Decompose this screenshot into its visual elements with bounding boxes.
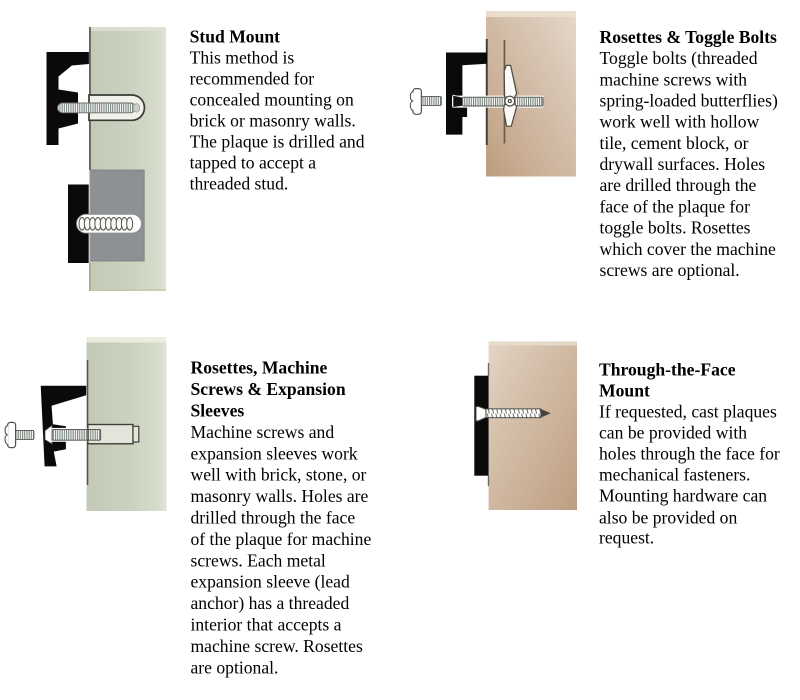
svg-text:drywall surfaces. Holes: drywall surfaces. Holes	[600, 154, 766, 174]
svg-text:well with brick, stone, or: well with brick, stone, or	[191, 465, 367, 485]
svg-text:machine screws with: machine screws with	[600, 69, 748, 89]
svg-text:which cover the machine: which cover the machine	[600, 239, 777, 259]
svg-text:If requested, cast plaques: If requested, cast plaques	[599, 402, 777, 422]
svg-text:tapped to accept a: tapped to accept a	[190, 152, 317, 172]
svg-text:threaded stud.: threaded stud.	[190, 173, 289, 193]
svg-text:Rosettes & Toggle Bolts: Rosettes & Toggle Bolts	[600, 27, 778, 47]
svg-text:are drilled through the: are drilled through the	[600, 175, 757, 195]
svg-text:screws are optional.: screws are optional.	[600, 260, 740, 280]
svg-text:anchor) has a threaded: anchor) has a threaded	[191, 593, 350, 613]
svg-text:request.: request.	[599, 528, 654, 548]
svg-text:machine screw. Rosettes: machine screw. Rosettes	[191, 636, 363, 656]
svg-text:spring-loaded butterflies): spring-loaded butterflies)	[600, 91, 778, 111]
svg-text:masonry walls. Holes are: masonry walls. Holes are	[191, 486, 369, 506]
svg-text:screws. Each metal: screws. Each metal	[191, 550, 326, 570]
svg-text:are optional.: are optional.	[191, 657, 279, 677]
svg-text:This method is: This method is	[190, 47, 295, 67]
svg-text:recommended for: recommended for	[190, 68, 315, 88]
svg-text:can be provided with: can be provided with	[599, 423, 747, 443]
svg-text:Rosettes, Machine: Rosettes, Machine	[191, 358, 328, 378]
svg-text:Sleeves: Sleeves	[191, 401, 245, 421]
svg-text:Stud Mount: Stud Mount	[190, 26, 281, 46]
svg-text:Mounting hardware can: Mounting hardware can	[599, 486, 767, 506]
svg-text:Mount: Mount	[599, 381, 650, 401]
svg-text:The plaque is drilled and: The plaque is drilled and	[190, 131, 365, 151]
svg-text:Toggle bolts (threaded: Toggle bolts (threaded	[600, 48, 758, 68]
svg-text:expansion sleeve (lead: expansion sleeve (lead	[191, 572, 350, 592]
svg-text:mechanical fasteners.: mechanical fasteners.	[599, 465, 750, 485]
svg-text:face of the plaque for: face of the plaque for	[600, 196, 751, 216]
svg-text:also be provided on: also be provided on	[599, 507, 737, 527]
svg-text:toggle bolts. Rosettes: toggle bolts. Rosettes	[600, 218, 751, 238]
svg-text:of the plaque for machine: of the plaque for machine	[191, 529, 372, 549]
svg-text:Screws & Expansion: Screws & Expansion	[191, 379, 346, 399]
svg-text:interior that accepts a: interior that accepts a	[191, 615, 342, 635]
svg-text:drilled through the face: drilled through the face	[191, 508, 356, 528]
svg-text:tile, cement block, or: tile, cement block, or	[600, 133, 749, 153]
svg-text:work well with hollow: work well with hollow	[600, 112, 760, 132]
svg-text:expansion sleeves work: expansion sleeves work	[191, 443, 358, 463]
svg-text:holes through the face for: holes through the face for	[599, 444, 780, 464]
svg-text:Machine screws and: Machine screws and	[191, 422, 335, 442]
svg-text:brick or masonry walls.: brick or masonry walls.	[190, 110, 356, 130]
svg-text:concealed mounting on: concealed mounting on	[190, 89, 354, 109]
svg-text:Through-the-Face: Through-the-Face	[599, 360, 736, 380]
